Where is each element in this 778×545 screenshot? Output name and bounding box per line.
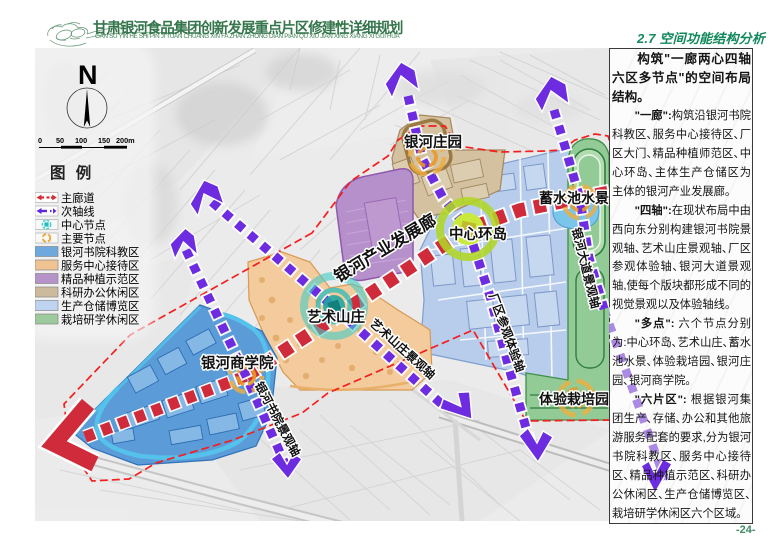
svg-text:图 例: 图 例 <box>50 163 94 182</box>
svg-text:蓄水池水景: 蓄水池水景 <box>539 190 609 206</box>
svg-text:150: 150 <box>98 136 110 145</box>
svg-text:银河庄园: 银河庄园 <box>404 133 462 151</box>
svg-text:主要节点: 主要节点 <box>61 233 106 246</box>
svg-text:100: 100 <box>75 136 87 145</box>
svg-text:生产仓储博览区: 生产仓储博览区 <box>61 299 139 313</box>
svg-text:0: 0 <box>38 136 42 145</box>
svg-text:N: N <box>78 60 98 90</box>
svg-text:中心节点: 中心节点 <box>61 219 106 232</box>
svg-text:科研办公休闲区: 科研办公休闲区 <box>61 286 139 300</box>
svg-text:体验栽培园: 体验栽培园 <box>539 391 609 407</box>
svg-text:服务中心接待区: 服务中心接待区 <box>61 259 139 273</box>
svg-text:精品种植示范区: 精品种植示范区 <box>61 272 139 286</box>
svg-text:银河书院科教区: 银河书院科教区 <box>61 245 139 259</box>
svg-text:主廊道: 主廊道 <box>61 191 95 205</box>
svg-text:银河商学院: 银河商学院 <box>201 354 274 372</box>
svg-text:200m: 200m <box>116 136 135 145</box>
svg-text:栽培研学休闲区: 栽培研学休闲区 <box>61 313 139 327</box>
svg-text:艺术山庄: 艺术山庄 <box>307 308 365 326</box>
svg-text:中心环岛: 中心环岛 <box>449 225 507 243</box>
svg-text:次轴线: 次轴线 <box>61 205 95 219</box>
svg-text:50: 50 <box>56 136 64 145</box>
